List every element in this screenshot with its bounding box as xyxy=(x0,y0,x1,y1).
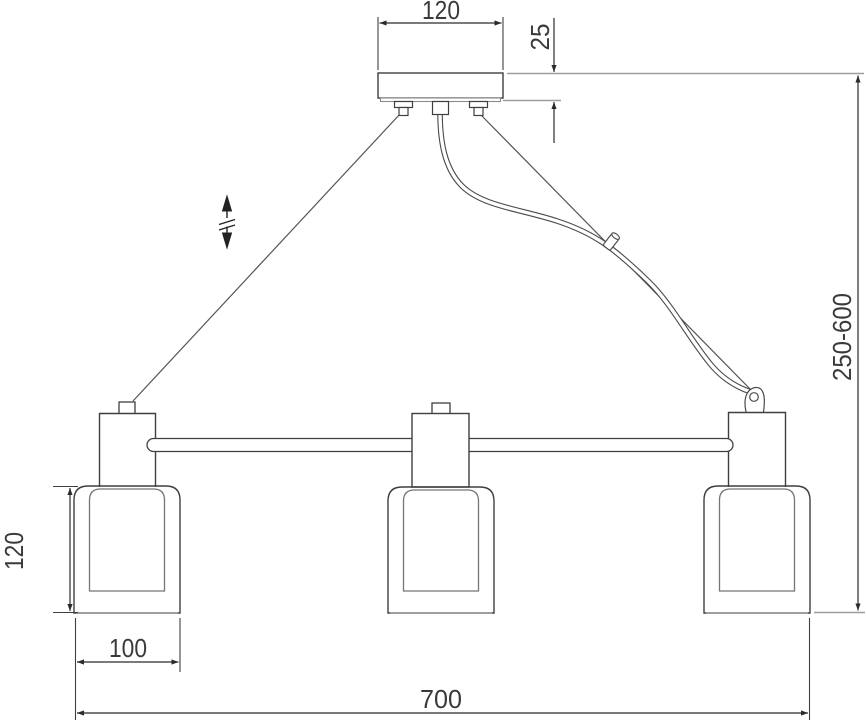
height-adjust-icon xyxy=(219,196,235,248)
lamp-right-shade-inner xyxy=(720,489,795,591)
cord-connector xyxy=(433,102,449,115)
lamp-right-hook-ring xyxy=(750,393,759,402)
suspension-system xyxy=(133,112,752,401)
lamp-right-body xyxy=(729,413,786,488)
dim-canopy-height-label: 25 xyxy=(525,24,555,51)
power-cord-outline xyxy=(440,112,751,392)
cable-grip-right xyxy=(470,102,488,108)
dim-suspension-height: 250-600 xyxy=(827,76,858,611)
lamp-left-body xyxy=(100,414,156,488)
cable-grip-left xyxy=(395,102,413,108)
lamp-left-nipple xyxy=(119,402,135,414)
lamp-center-shade-inner xyxy=(404,490,479,591)
cable-grip-right-tip xyxy=(474,108,483,116)
dim-canopy-width-label: 120 xyxy=(422,0,460,25)
lamp-shades xyxy=(74,486,810,613)
dim-canopy-height: 25 xyxy=(525,18,555,143)
lamp-right xyxy=(729,387,786,487)
dim-shade-width: 100 xyxy=(76,618,181,720)
dim-suspension-height-label: 250-600 xyxy=(827,293,857,381)
suspension-cable-left xyxy=(133,114,400,401)
power-cord-core xyxy=(440,112,751,392)
lamp-left-shade-inner xyxy=(90,489,165,591)
chandelier-dimension-drawing: 120 25 250-600 120 100 700 xyxy=(0,0,866,720)
height-adjust-down-arrowhead xyxy=(223,233,232,248)
canopy-body xyxy=(378,73,503,98)
cord-clamp xyxy=(603,232,621,251)
technical-drawing-page: 120 25 250-600 120 100 700 xyxy=(0,0,866,720)
dim-overall-width: 700 xyxy=(77,618,810,720)
lamp-center xyxy=(412,403,469,487)
dim-overall-width-label: 700 xyxy=(420,684,462,714)
lamp-center-nipple xyxy=(432,403,450,414)
cable-grip-left-tip xyxy=(399,108,408,116)
height-adjust-up-arrowhead xyxy=(223,196,232,211)
dim-shade-height: 120 xyxy=(0,487,78,613)
canopy-fittings xyxy=(395,102,488,116)
ceiling-canopy xyxy=(378,73,503,116)
dim-shade-width-label: 100 xyxy=(109,633,147,663)
dim-shade-height-label: 120 xyxy=(0,532,29,570)
height-adjust-break-mark-1 xyxy=(219,220,235,225)
dim-canopy-width: 120 xyxy=(378,0,503,70)
lamp-center-body xyxy=(412,414,469,488)
